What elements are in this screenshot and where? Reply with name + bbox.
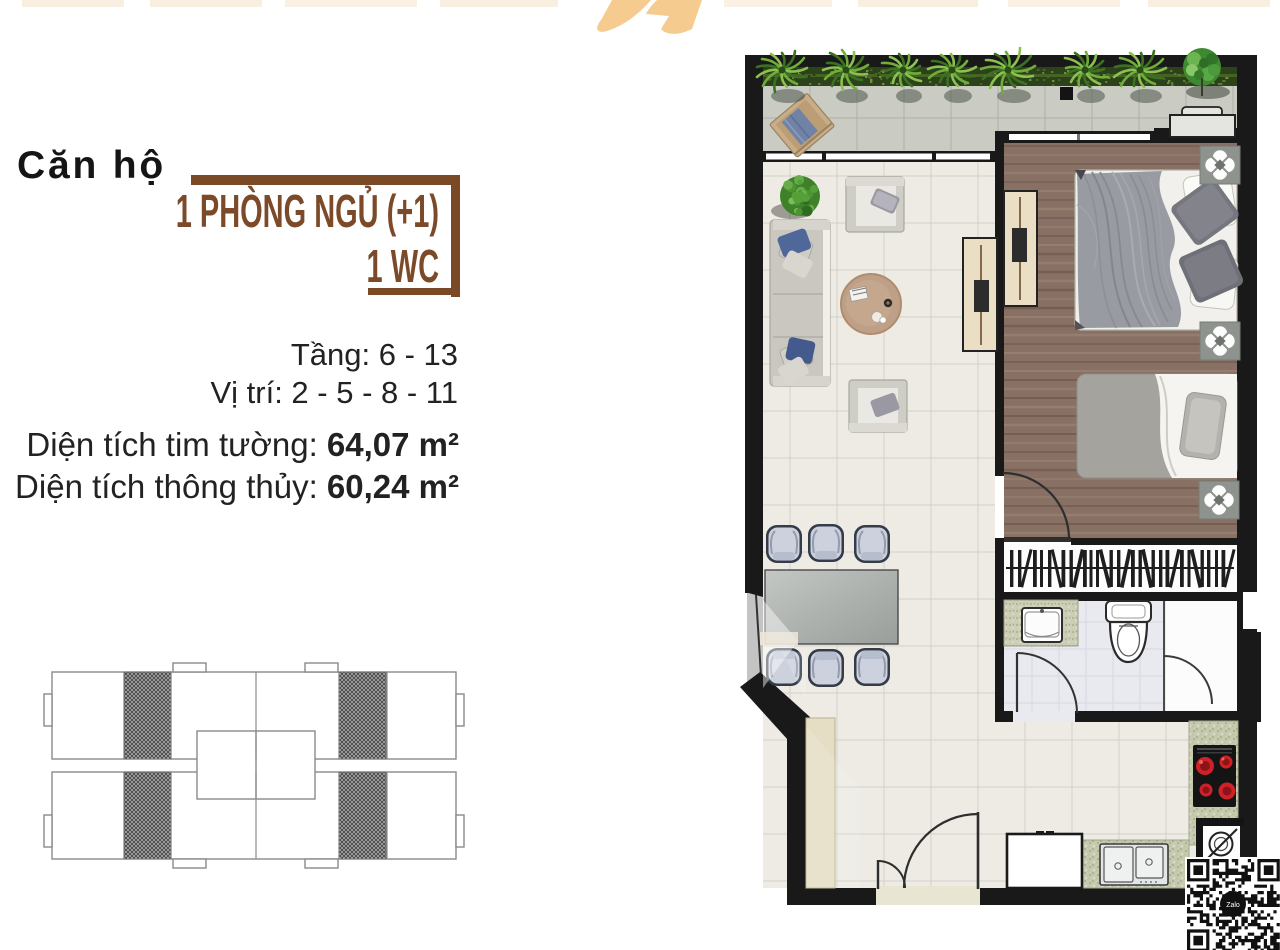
svg-text:Zalo: Zalo <box>1226 902 1240 909</box>
